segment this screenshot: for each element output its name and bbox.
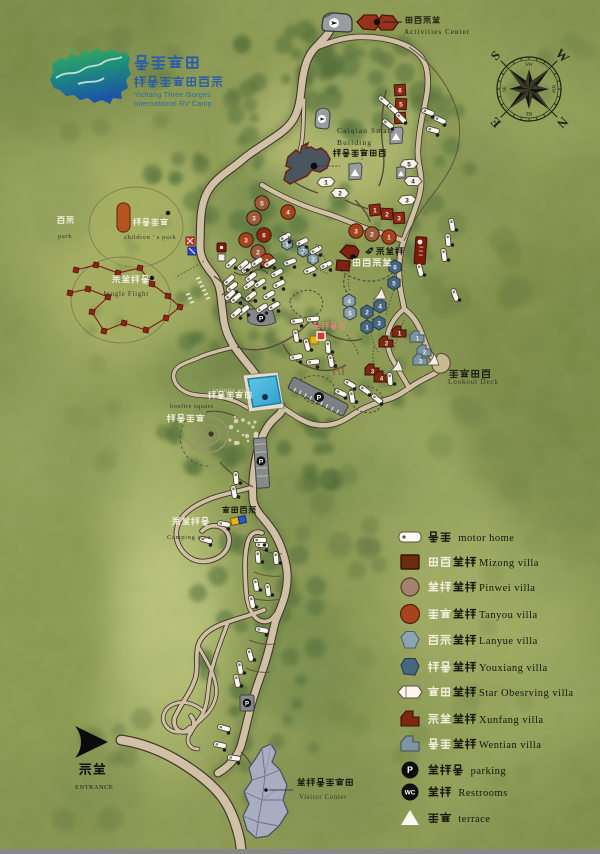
svg-text:3: 3	[397, 215, 401, 222]
svg-text:1: 1	[387, 234, 391, 241]
svg-text:3: 3	[311, 256, 315, 263]
svg-text:SE: SE	[503, 86, 508, 92]
svg-text:International RV Camp: International RV Camp	[134, 99, 212, 108]
svg-text:6: 6	[262, 232, 266, 239]
svg-text:3: 3	[354, 228, 358, 235]
svg-text:5: 5	[407, 161, 411, 168]
svg-text:bonfire square: bonfire square	[170, 403, 214, 410]
svg-text:3: 3	[405, 197, 409, 204]
svg-text:1: 1	[373, 207, 377, 214]
svg-text:6: 6	[393, 264, 397, 271]
svg-text:Wentian villa: Wentian villa	[479, 740, 542, 751]
svg-text:1: 1	[365, 324, 369, 331]
svg-text:5: 5	[399, 101, 403, 108]
svg-text:Tanyou villa: Tanyou villa	[479, 610, 538, 621]
svg-text:2: 2	[370, 231, 374, 238]
svg-text:Star Obesrving villa: Star Obesrving villa	[479, 688, 574, 699]
svg-text:Caiqiao Small: Caiqiao Small	[337, 126, 394, 135]
svg-text:parking: parking	[471, 766, 507, 777]
svg-text:3: 3	[377, 320, 381, 327]
svg-text:WC: WC	[405, 790, 416, 797]
svg-text:P: P	[407, 765, 413, 775]
svg-text:3: 3	[244, 237, 248, 244]
svg-text:Mizong villa: Mizong villa	[479, 558, 539, 569]
svg-text:Yichang Three Gorges: Yichang Three Gorges	[134, 90, 211, 99]
svg-text:ENTRANCE: ENTRANCE	[75, 784, 113, 791]
svg-text:6: 6	[398, 87, 402, 94]
svg-text:Youxiang villa: Youxiang villa	[479, 663, 548, 674]
svg-text:P: P	[259, 459, 264, 466]
svg-text:Camping area: Camping area	[167, 534, 211, 541]
svg-text:4: 4	[286, 209, 290, 216]
svg-text:motor home: motor home	[458, 533, 514, 544]
svg-text:Xunfang villa: Xunfang villa	[479, 715, 544, 726]
svg-text:2: 2	[338, 190, 342, 197]
svg-text:NE: NE	[526, 110, 533, 115]
svg-text:park: park	[58, 233, 72, 240]
svg-text:Jungle Flight: Jungle Flight	[103, 290, 149, 298]
svg-text:Visitor Center: Visitor Center	[299, 794, 347, 801]
svg-text:Building: Building	[337, 138, 372, 147]
svg-text:P: P	[259, 316, 264, 323]
svg-text:1: 1	[324, 179, 328, 186]
svg-text:3: 3	[252, 215, 256, 222]
svg-text:terrace: terrace	[458, 814, 490, 825]
svg-text:4: 4	[347, 298, 351, 305]
svg-text:2: 2	[365, 309, 369, 316]
svg-text:NW: NW	[550, 85, 555, 94]
svg-text:5: 5	[348, 310, 352, 317]
svg-text:2: 2	[256, 249, 260, 256]
svg-text:Activities Center: Activities Center	[404, 28, 470, 36]
svg-text:children ' s park: children ' s park	[124, 234, 176, 241]
svg-text:P: P	[317, 395, 322, 402]
svg-text:2: 2	[385, 211, 389, 218]
svg-text:P: P	[245, 702, 249, 708]
svg-text:4: 4	[378, 303, 382, 310]
svg-text:4: 4	[411, 178, 415, 185]
svg-text:Lanyue villa: Lanyue villa	[479, 636, 538, 647]
svg-text:Lookout Deck: Lookout Deck	[448, 378, 499, 386]
svg-text:SW: SW	[525, 63, 533, 68]
svg-text:Pinwei villa: Pinwei villa	[479, 583, 535, 594]
svg-text:5: 5	[260, 200, 264, 207]
svg-text:Restrooms: Restrooms	[458, 788, 507, 799]
